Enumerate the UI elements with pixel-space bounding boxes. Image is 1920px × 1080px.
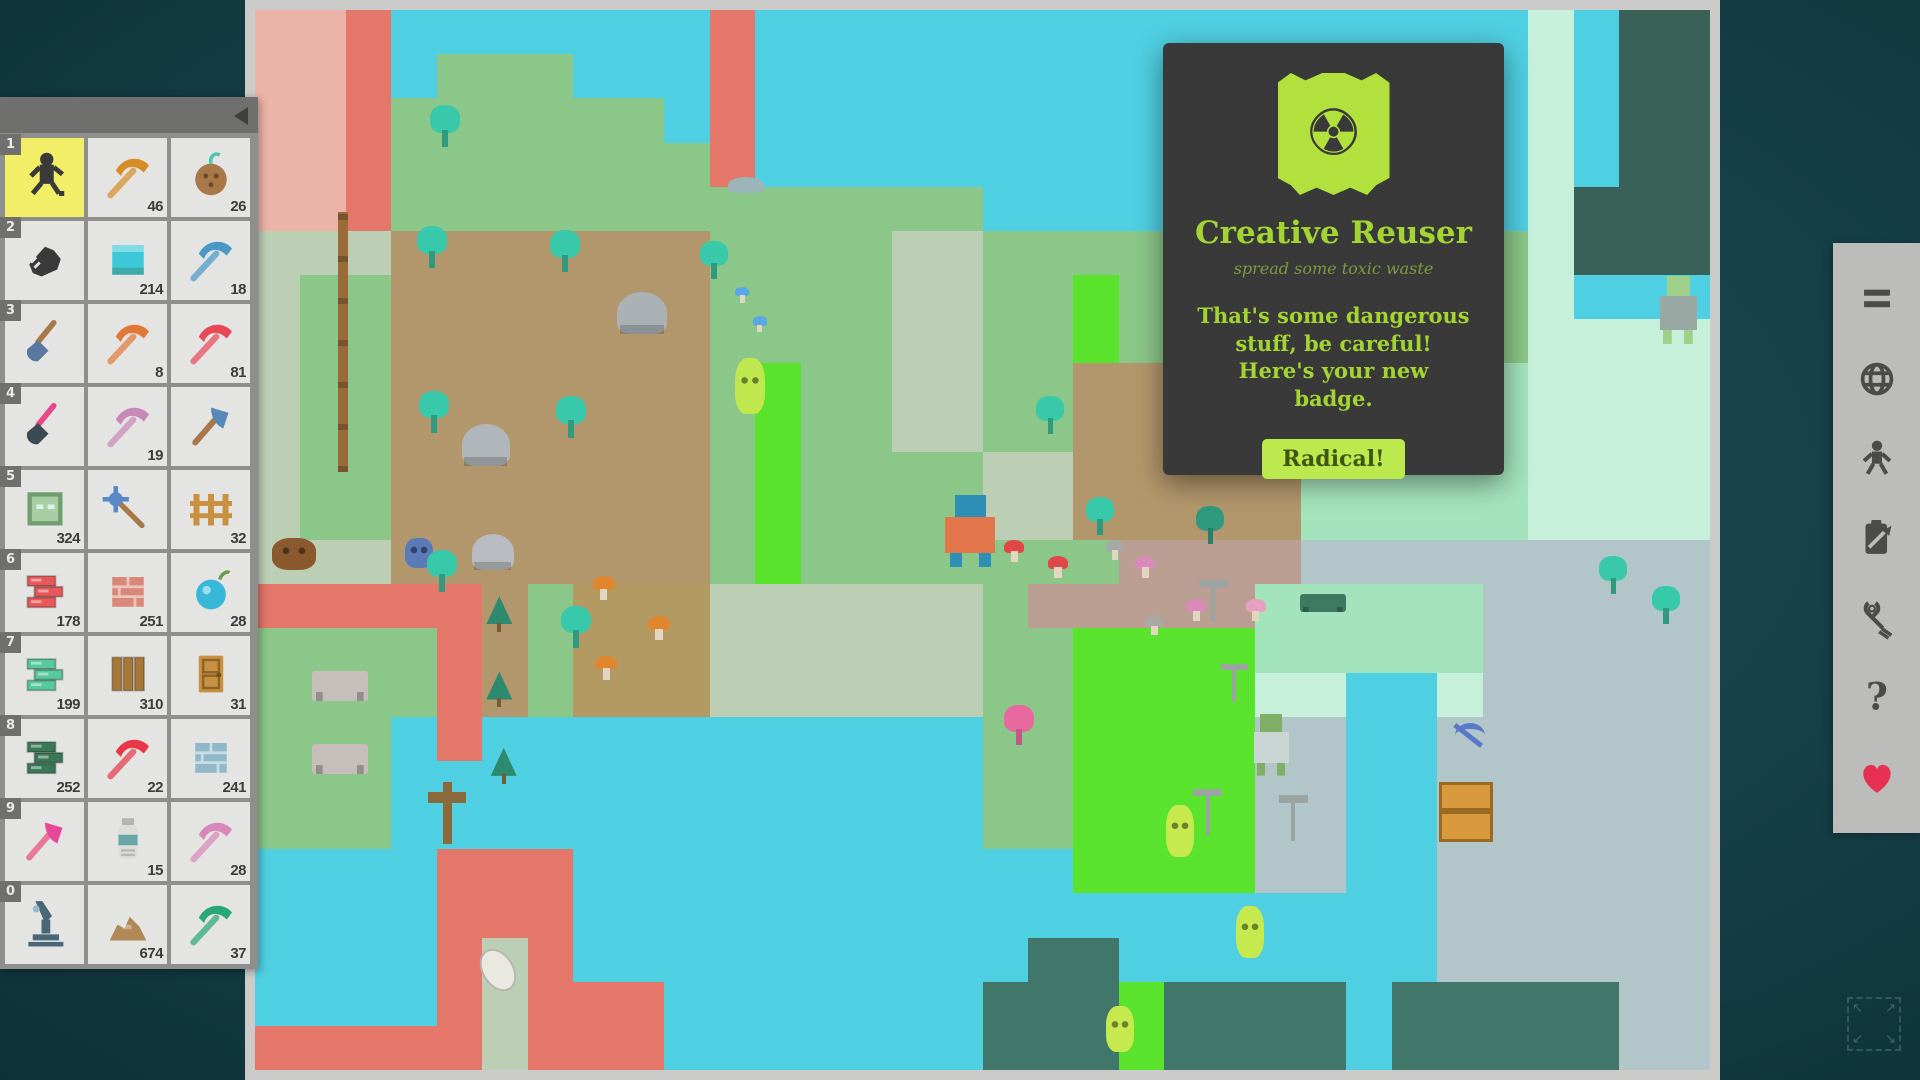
help-icon[interactable]: ? [1853, 674, 1901, 722]
map-tile-mint-lawn [1301, 496, 1346, 540]
map-tile-water [755, 805, 800, 849]
item-count: 674 [139, 945, 163, 962]
map-tile-farm-dirt [391, 452, 436, 496]
map-tile-water [937, 982, 982, 1026]
map-tile-grass [1028, 673, 1073, 717]
map-tile-road-dashed [755, 673, 800, 717]
map-tile-grass [437, 54, 482, 98]
map-tile-teal-brick [1392, 982, 1437, 1026]
map-tile-red-brick [528, 982, 573, 1026]
map-tile-farm-dirt [619, 496, 664, 540]
map-tile-water [1119, 938, 1164, 982]
slot-row-number: 4 [0, 383, 21, 404]
map-tile-grass [1028, 275, 1073, 319]
map-tile-red-brick [573, 1026, 618, 1070]
map-tile-water [1073, 893, 1118, 937]
item-count: 241 [222, 779, 246, 796]
map-tile-stone-pavement [1619, 982, 1664, 1026]
map-tile-farm-dirt [482, 231, 527, 275]
map-tile-pale-pink-brick [255, 10, 300, 54]
map-tile-water [482, 761, 527, 805]
hotbar-slot-7-2[interactable]: 310 [88, 636, 167, 715]
map-tile-red-brick [482, 849, 527, 893]
shovel-icon [17, 314, 73, 374]
hotbar-slot-2-1[interactable]: 2 [5, 221, 84, 300]
item-count: 324 [56, 530, 80, 547]
hotbar-slot-9-3[interactable]: 28 [171, 802, 250, 881]
map-tile-grass [300, 673, 345, 717]
map-tile-road-dashed [892, 408, 937, 452]
map-tile-water [391, 893, 436, 937]
map-tile-farm-dirt [391, 540, 436, 584]
map-tile-mint-checker [1619, 408, 1664, 452]
map-tile-stone-pavement [1619, 761, 1664, 805]
map-tile-road-dashed [801, 673, 846, 717]
map-tile-red-brick [619, 982, 664, 1026]
map-tile-road-dashed [255, 363, 300, 407]
map-tile-water [983, 849, 1028, 893]
map-tile-pale-pink-brick [255, 54, 300, 98]
map-tile-water [710, 938, 755, 982]
map-tile-farm-dirt [619, 319, 664, 363]
map-tile-stone-pavement [1528, 673, 1573, 717]
map-tile-grass [846, 452, 891, 496]
map-tile-farm-dirt [664, 540, 709, 584]
map-tile-stone-pavement [1437, 540, 1482, 584]
hotbar-slot-1-1[interactable]: 1 [5, 138, 84, 217]
map-tile-water [937, 10, 982, 54]
hotbar-slot-6-2[interactable]: 251 [88, 553, 167, 632]
map-tile-teal-brick [1437, 982, 1482, 1026]
map-tile-water [937, 761, 982, 805]
heart-icon[interactable] [1853, 753, 1901, 801]
map-tile-water [1346, 717, 1391, 761]
axe-icon [183, 397, 239, 457]
hotbar-slot-9-2[interactable]: 15 [88, 802, 167, 881]
map-tile-water [346, 982, 391, 1026]
map-tile-grass [619, 187, 664, 231]
map-tile-grass [346, 761, 391, 805]
map-tile-stone-pavement [1483, 628, 1528, 672]
map-tile-stone-pavement [1483, 717, 1528, 761]
map-tile-grass [710, 187, 755, 231]
map-tile-stone-pavement [1665, 584, 1710, 628]
map-tile-toxic-grass [1119, 717, 1164, 761]
map-tile-pink-dirt [1073, 584, 1118, 628]
map-tile-water [300, 893, 345, 937]
fullscreen-arrow: ↘ [1885, 1033, 1896, 1046]
hotbar-slot-5-2[interactable] [88, 470, 167, 549]
map-tile-water [1028, 98, 1073, 142]
map-tile-grass [391, 98, 436, 142]
map-tile-teal-brick [1528, 982, 1573, 1026]
map-tile-red-brick [437, 628, 482, 672]
inventory-hotbar: 1462622141838814195324326178251287199310… [0, 97, 258, 969]
map-tile-grass [300, 452, 345, 496]
map-tile-mint-checker [1528, 10, 1573, 54]
map-tile-farm-dirt [391, 363, 436, 407]
map-tile-grass [710, 496, 755, 540]
map-tile-red-brick [619, 1026, 664, 1070]
map-tile-stone-pavement [1255, 761, 1300, 805]
map-tile-grass [300, 805, 345, 849]
map-tile-water [937, 54, 982, 98]
map-tile-stone-pavement [1619, 893, 1664, 937]
hotbar-slot-7-3[interactable]: 31 [171, 636, 250, 715]
hotbar-slot-5-3[interactable]: 32 [171, 470, 250, 549]
map-tile-grass [710, 319, 755, 363]
map-tile-pale-pink-brick [300, 143, 345, 187]
map-tile-water [1028, 54, 1073, 98]
map-tile-teal-brick [1437, 1026, 1482, 1070]
map-tile-water [391, 849, 436, 893]
slot-row-number: 2 [0, 217, 21, 238]
map-tile-farm-dirt [437, 408, 482, 452]
map-tile-grass [437, 98, 482, 142]
map-tile-water [1028, 187, 1073, 231]
map-tile-red-brick [528, 893, 573, 937]
map-tile-water [664, 10, 709, 54]
hotbar-slot-4-1[interactable]: 4 [5, 387, 84, 466]
fullscreen-arrow: ↗ [1885, 1002, 1896, 1015]
map-tile-farm-dirt [391, 275, 436, 319]
map-tile-water [937, 143, 982, 187]
slot-row-number: 6 [0, 549, 21, 570]
map-tile-stone-pavement [1574, 540, 1619, 584]
slot-row-number: 3 [0, 300, 21, 321]
map-tile-pink-dirt [1255, 540, 1300, 584]
map-tile-pink-dirt [1164, 584, 1209, 628]
map-tile-road-dashed [846, 673, 891, 717]
map-tile-water [300, 849, 345, 893]
map-tile-mint-checker [1528, 408, 1573, 452]
map-tile-path [846, 628, 891, 672]
hotbar-header [0, 97, 258, 133]
hotbar-slot-0-2[interactable]: 674 [88, 885, 167, 964]
map-tile-water [846, 98, 891, 142]
map-tile-water [1574, 98, 1619, 142]
radiation-icon: ☢ [1305, 102, 1362, 166]
globe-icon[interactable] [1853, 355, 1901, 403]
map-tile-grass [983, 673, 1028, 717]
map-tile-red-brick [437, 938, 482, 982]
map-tile-water [528, 761, 573, 805]
map-tile-stone-pavement [1528, 849, 1573, 893]
hotbar-slot-0-3[interactable]: 37 [171, 885, 250, 964]
map-tile-water [1346, 673, 1391, 717]
map-tile-water [1073, 54, 1118, 98]
map-tile-mint-checker [1528, 319, 1573, 363]
map-tile-water [846, 717, 891, 761]
hotbar-slot-2-3[interactable]: 18 [171, 221, 250, 300]
map-tile-red-brick [437, 893, 482, 937]
map-tile-mint-checker [1665, 408, 1710, 452]
item-count: 178 [56, 613, 80, 630]
item-count: 15 [147, 862, 163, 879]
map-tile-grass [346, 717, 391, 761]
map-tile-water [619, 938, 664, 982]
map-tile-water [437, 761, 482, 805]
game-screen: 1462622141838814195324326178251287199310… [0, 0, 1920, 1080]
map-tile-grass [573, 143, 618, 187]
hotbar-slot-3-3[interactable]: 81 [171, 304, 250, 383]
hotbar-slot-0-1[interactable]: 0 [5, 885, 84, 964]
map-tile-stone-pavement [1483, 938, 1528, 982]
map-tile-farm-dirt [664, 363, 709, 407]
hotbar-slot-3-2[interactable]: 8 [88, 304, 167, 383]
map-tile-pine-dirt [482, 628, 527, 672]
map-tile-stone-pavement [1574, 673, 1619, 717]
map-tile-water [710, 1026, 755, 1070]
map-tile-mint-checker [1574, 319, 1619, 363]
slot-row-number: 8 [0, 715, 21, 736]
hotbar-slot-6-3[interactable]: 28 [171, 553, 250, 632]
map-tile-farm-dirt [1164, 496, 1209, 540]
map-tile-water [573, 54, 618, 98]
map-tile-mint-checker [1528, 363, 1573, 407]
hotbar-slot-4-2[interactable]: 19 [88, 387, 167, 466]
map-tile-stone-pavement [1619, 849, 1664, 893]
map-tile-grass [983, 761, 1028, 805]
map-tile-mint-lawn [1392, 496, 1437, 540]
radical-button[interactable]: Radical! [1262, 439, 1404, 479]
map-tile-grass [528, 54, 573, 98]
map-tile-stone-pavement [1574, 761, 1619, 805]
map-tile-red-brick [300, 1026, 345, 1070]
map-tile-toxic-grass [1210, 717, 1255, 761]
map-tile-pale-pink-brick [255, 143, 300, 187]
map-tile-grass [255, 805, 300, 849]
map-tile-water [1028, 10, 1073, 54]
map-tile-grass [482, 54, 527, 98]
map-tile-teal-brick [1483, 982, 1528, 1026]
map-tile-water [801, 849, 846, 893]
map-tile-water [1392, 761, 1437, 805]
map-tile-water [391, 717, 436, 761]
map-tile-grass [801, 187, 846, 231]
hotbar-slot-1-3[interactable]: 26 [171, 138, 250, 217]
map-tile-water [846, 938, 891, 982]
map-tile-grass [346, 496, 391, 540]
map-tile-grass [846, 408, 891, 452]
map-tile-road-dashed [710, 673, 755, 717]
hotbar-slot-7-1[interactable]: 7199 [5, 636, 84, 715]
map-tile-stone-pavement [1483, 761, 1528, 805]
map-tile-water [983, 893, 1028, 937]
map-tile-grass [983, 408, 1028, 452]
map-tile-stone-pavement [1437, 938, 1482, 982]
map-tile-water [983, 143, 1028, 187]
item-count: 199 [56, 696, 80, 713]
map-tile-stone-pavement [1483, 893, 1528, 937]
map-tile-mushroom-dirt [664, 584, 709, 628]
map-tile-water [983, 54, 1028, 98]
item-count: 28 [230, 613, 246, 630]
map-tile-stone-pavement [1301, 849, 1346, 893]
map-tile-water [573, 10, 618, 54]
map-tile-grass [573, 98, 618, 142]
map-tile-water [255, 938, 300, 982]
hotbar-slot-8-3[interactable]: 241 [171, 719, 250, 798]
map-tile-water [755, 893, 800, 937]
fullscreen-icon[interactable]: ↖↗↙↘ [1847, 997, 1901, 1051]
map-tile-grass [528, 187, 573, 231]
menu-icon[interactable] [1853, 275, 1901, 323]
hotbar-slot-4-3[interactable] [171, 387, 250, 466]
map-tile-grass [528, 628, 573, 672]
map-tile-farm-dirt [437, 540, 482, 584]
map-tile-water [437, 10, 482, 54]
map-tile-water [664, 893, 709, 937]
map-tile-path [482, 938, 527, 982]
item-count: 28 [230, 862, 246, 879]
map-tile-water [664, 717, 709, 761]
map-tile-grass [300, 408, 345, 452]
mace-icon [100, 480, 156, 540]
map-tile-water [255, 893, 300, 937]
map-tile-water [892, 54, 937, 98]
map-tile-grass [300, 275, 345, 319]
map-tile-stone-pavement [1619, 540, 1664, 584]
map-tile-farm-dirt [528, 408, 573, 452]
map-tile-grass [801, 275, 846, 319]
hotbar-slot-3-1[interactable]: 3 [5, 304, 84, 383]
map-tile-toxic-grass [1119, 673, 1164, 717]
map-tile-water [346, 893, 391, 937]
map-tile-toxic-grass [1210, 628, 1255, 672]
map-tile-stone-pavement [1619, 584, 1664, 628]
map-tile-dark-brick [1619, 143, 1664, 187]
map-tile-red-brick [710, 98, 755, 142]
map-tile-water [937, 1026, 982, 1070]
map-tile-road-dashed [937, 363, 982, 407]
player-icon[interactable] [1853, 434, 1901, 482]
map-tile-dark-brick [1619, 54, 1664, 98]
item-count: 310 [139, 696, 163, 713]
runner-icon [17, 148, 73, 208]
hotbar-slot-6-1[interactable]: 6178 [5, 553, 84, 632]
map-tile-grass [710, 408, 755, 452]
map-tile-mint-lawn [1255, 628, 1300, 672]
hotbar-slot-1-2[interactable]: 46 [88, 138, 167, 217]
hotbar-slot-9-1[interactable]: 9 [5, 802, 84, 881]
map-tile-water [664, 761, 709, 805]
map-tile-water [1574, 10, 1619, 54]
map-tile-grass [801, 496, 846, 540]
badge-subtitle: spread some toxic waste [1163, 259, 1504, 278]
map-tile-path [801, 628, 846, 672]
map-tile-toxic-grass [1073, 673, 1118, 717]
map-tile-water [1119, 54, 1164, 98]
map-tile-stone-pavement [1574, 717, 1619, 761]
map-tile-grass [255, 673, 300, 717]
map-tile-grass [1028, 319, 1073, 363]
map-tile-stone-pavement [1665, 849, 1710, 893]
map-tile-grass [1028, 408, 1073, 452]
map-tile-teal-brick [1073, 1026, 1118, 1070]
hotbar-slot-2-2[interactable]: 214 [88, 221, 167, 300]
map-tile-red-brick [528, 938, 573, 982]
map-tile-road-dashed [1028, 496, 1073, 540]
pliers-icon[interactable] [1853, 594, 1901, 642]
map-tile-grass [983, 717, 1028, 761]
map-tile-red-brick [482, 893, 527, 937]
map-tile-pale-pink-brick [300, 54, 345, 98]
map-tile-red-brick [255, 584, 300, 628]
map-tile-water [892, 143, 937, 187]
hotbar-slot-8-1[interactable]: 8252 [5, 719, 84, 798]
map-tile-water [1255, 893, 1300, 937]
map-tile-water [1392, 673, 1437, 717]
map-tile-pale-pink-brick [300, 187, 345, 231]
map-tile-water [1073, 98, 1118, 142]
map-tile-grass [346, 673, 391, 717]
map-tile-mint-checker [1619, 496, 1664, 540]
axe-icon [17, 812, 73, 872]
map-tile-water [619, 805, 664, 849]
map-tile-teal-brick [1073, 938, 1118, 982]
map-tile-water [755, 143, 800, 187]
map-tile-stone-pavement [1665, 628, 1710, 672]
map-tile-farm-dirt [573, 496, 618, 540]
map-tile-grass [300, 717, 345, 761]
map-tile-red-brick [346, 10, 391, 54]
map-tile-water [755, 98, 800, 142]
map-tile-grass [1028, 628, 1073, 672]
map-tile-grass [391, 628, 436, 672]
map-tile-water [755, 938, 800, 982]
map-tile-mint-checker [1665, 496, 1710, 540]
hotbar-slot-5-1[interactable]: 5324 [5, 470, 84, 549]
map-tile-grass [892, 540, 937, 584]
map-tile-farm-dirt [664, 275, 709, 319]
map-tile-red-brick [346, 187, 391, 231]
collapse-sidebar-icon[interactable] [234, 107, 248, 125]
map-tile-mint-checker [1574, 496, 1619, 540]
map-tile-water [755, 982, 800, 1026]
map-tile-grass [528, 584, 573, 628]
map-tile-farm-dirt [1119, 363, 1164, 407]
map-tile-mushroom-dirt [573, 584, 618, 628]
map-tile-water [1073, 10, 1118, 54]
map-tile-farm-dirt [573, 275, 618, 319]
map-tile-road-dashed [346, 231, 391, 275]
map-tile-path [755, 628, 800, 672]
map-tile-mint-lawn [1346, 628, 1391, 672]
map-tile-water [664, 98, 709, 142]
map-tile-water [573, 805, 618, 849]
map-tile-dark-brick [1665, 143, 1710, 187]
clipboard-icon[interactable] [1853, 514, 1901, 562]
map-tile-farm-dirt [619, 540, 664, 584]
map-tile-water [391, 761, 436, 805]
map-tile-mint-checker [1528, 143, 1573, 187]
map-tile-water [755, 849, 800, 893]
map-tile-water [1346, 849, 1391, 893]
hotbar-slot-8-2[interactable]: 22 [88, 719, 167, 798]
map-tile-road-dashed [892, 231, 937, 275]
map-tile-mint-checker [1255, 673, 1300, 717]
map-tile-mint-checker [1574, 363, 1619, 407]
item-count: 19 [147, 447, 163, 464]
item-count: 252 [56, 779, 80, 796]
map-tile-grass [710, 275, 755, 319]
map-tile-mint-checker [1574, 408, 1619, 452]
map-tile-mushroom-dirt [619, 673, 664, 717]
map-tile-grass [528, 673, 573, 717]
map-tile-mint-checker [1301, 673, 1346, 717]
map-tile-pink-dirt [1164, 540, 1209, 584]
